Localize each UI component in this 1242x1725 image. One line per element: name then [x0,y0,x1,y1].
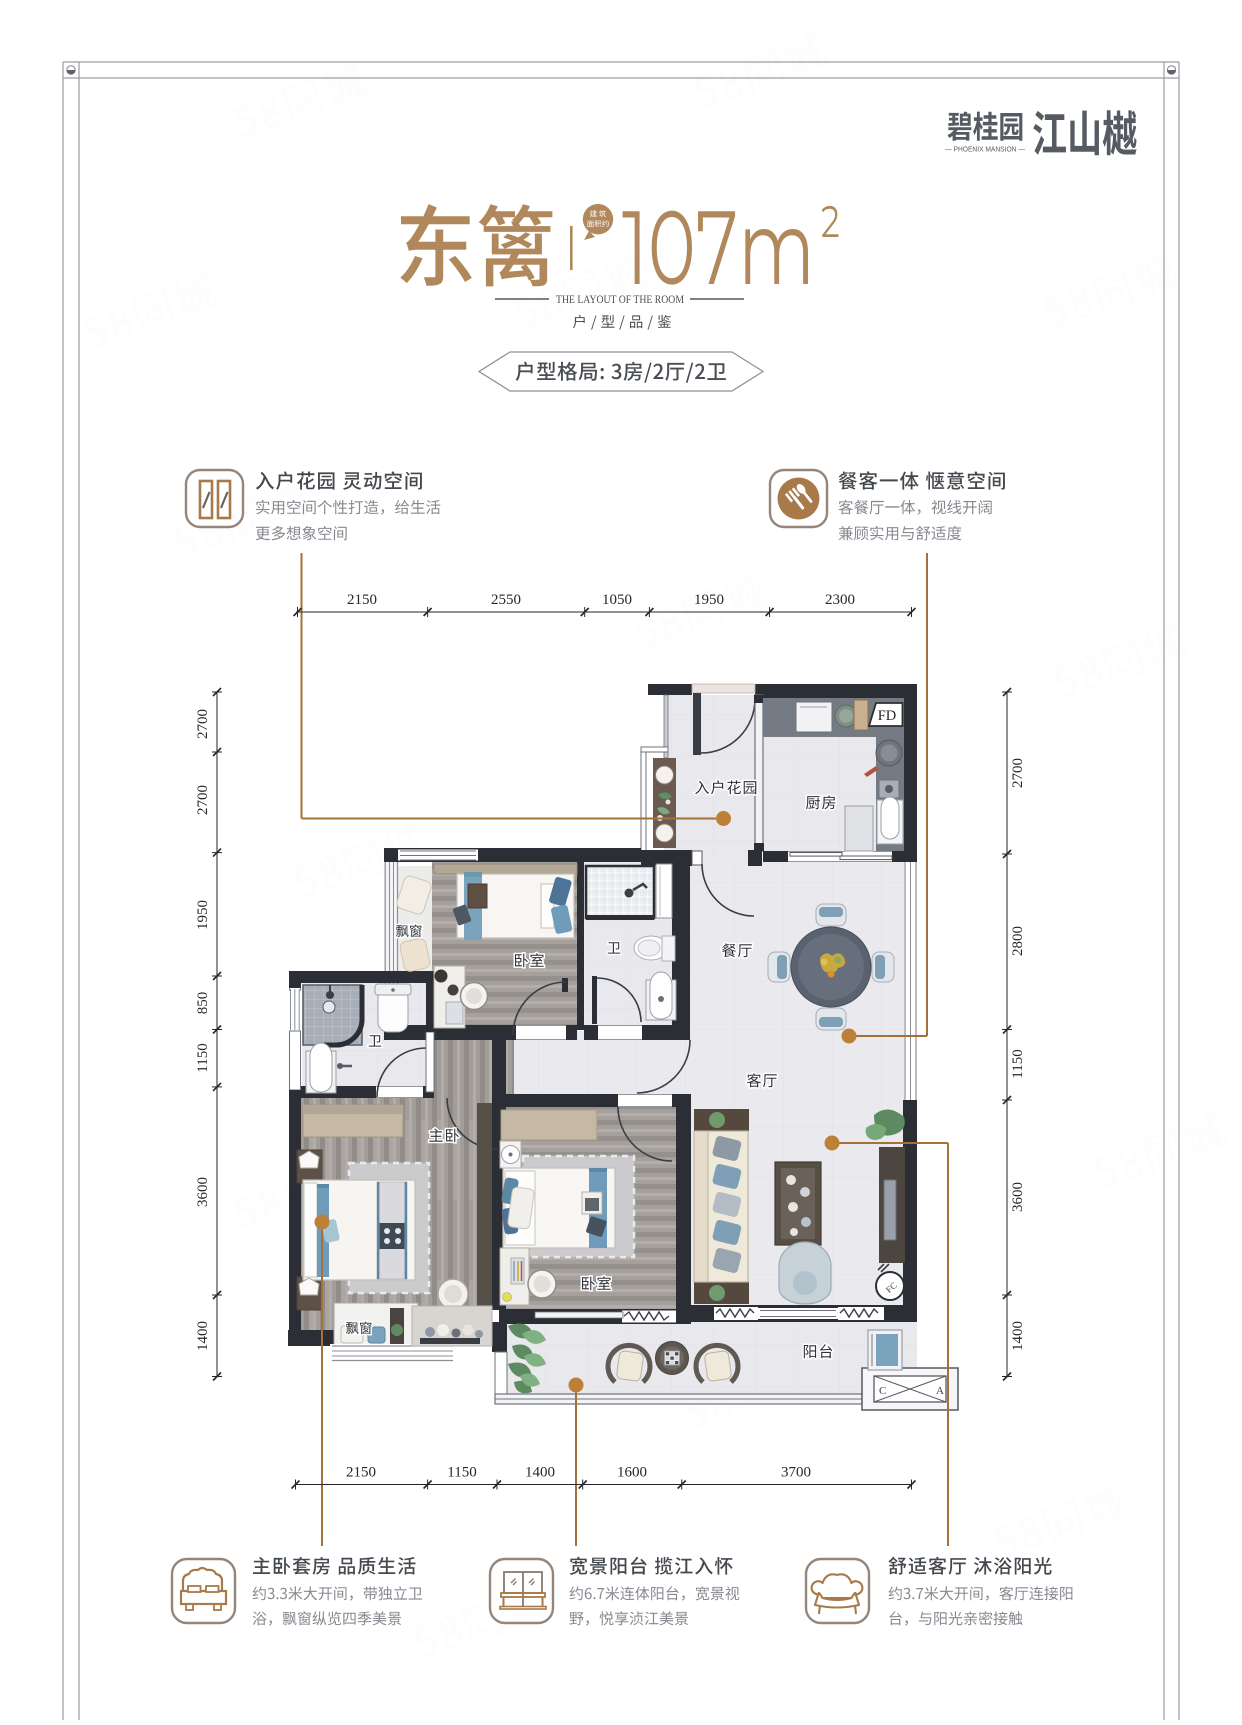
svg-text:2300: 2300 [825,592,855,608]
svg-text:1600: 1600 [617,1465,647,1481]
svg-text:1150: 1150 [447,1465,476,1481]
svg-text:3600: 3600 [195,1177,211,1207]
svg-text:THE LAYOUT OF THE ROOM: THE LAYOUT OF THE ROOM [556,294,684,306]
svg-text:FD: FD [878,708,897,724]
svg-text:850: 850 [195,992,211,1015]
svg-text:A: A [936,1385,944,1397]
svg-text:1400: 1400 [1010,1321,1026,1351]
svg-text:2700: 2700 [1010,758,1026,788]
svg-text:2700: 2700 [195,785,211,815]
svg-text:— PHOENIX MANSION —: — PHOENIX MANSION — [945,145,1026,154]
svg-text:1150: 1150 [1010,1049,1026,1078]
svg-text:2700: 2700 [195,709,211,739]
svg-text:2150: 2150 [347,592,377,608]
svg-text:1950: 1950 [195,900,211,930]
svg-text:C: C [879,1385,886,1397]
svg-text:3700: 3700 [781,1465,811,1481]
svg-text:1400: 1400 [525,1465,555,1481]
svg-text:2550: 2550 [491,592,521,608]
svg-text:1950: 1950 [694,592,724,608]
svg-text:3600: 3600 [1010,1182,1026,1212]
svg-text:2800: 2800 [1010,926,1026,956]
svg-text:1050: 1050 [602,592,632,608]
svg-text:2150: 2150 [346,1465,376,1481]
svg-text:1150: 1150 [195,1043,211,1072]
svg-text:1400: 1400 [195,1321,211,1351]
